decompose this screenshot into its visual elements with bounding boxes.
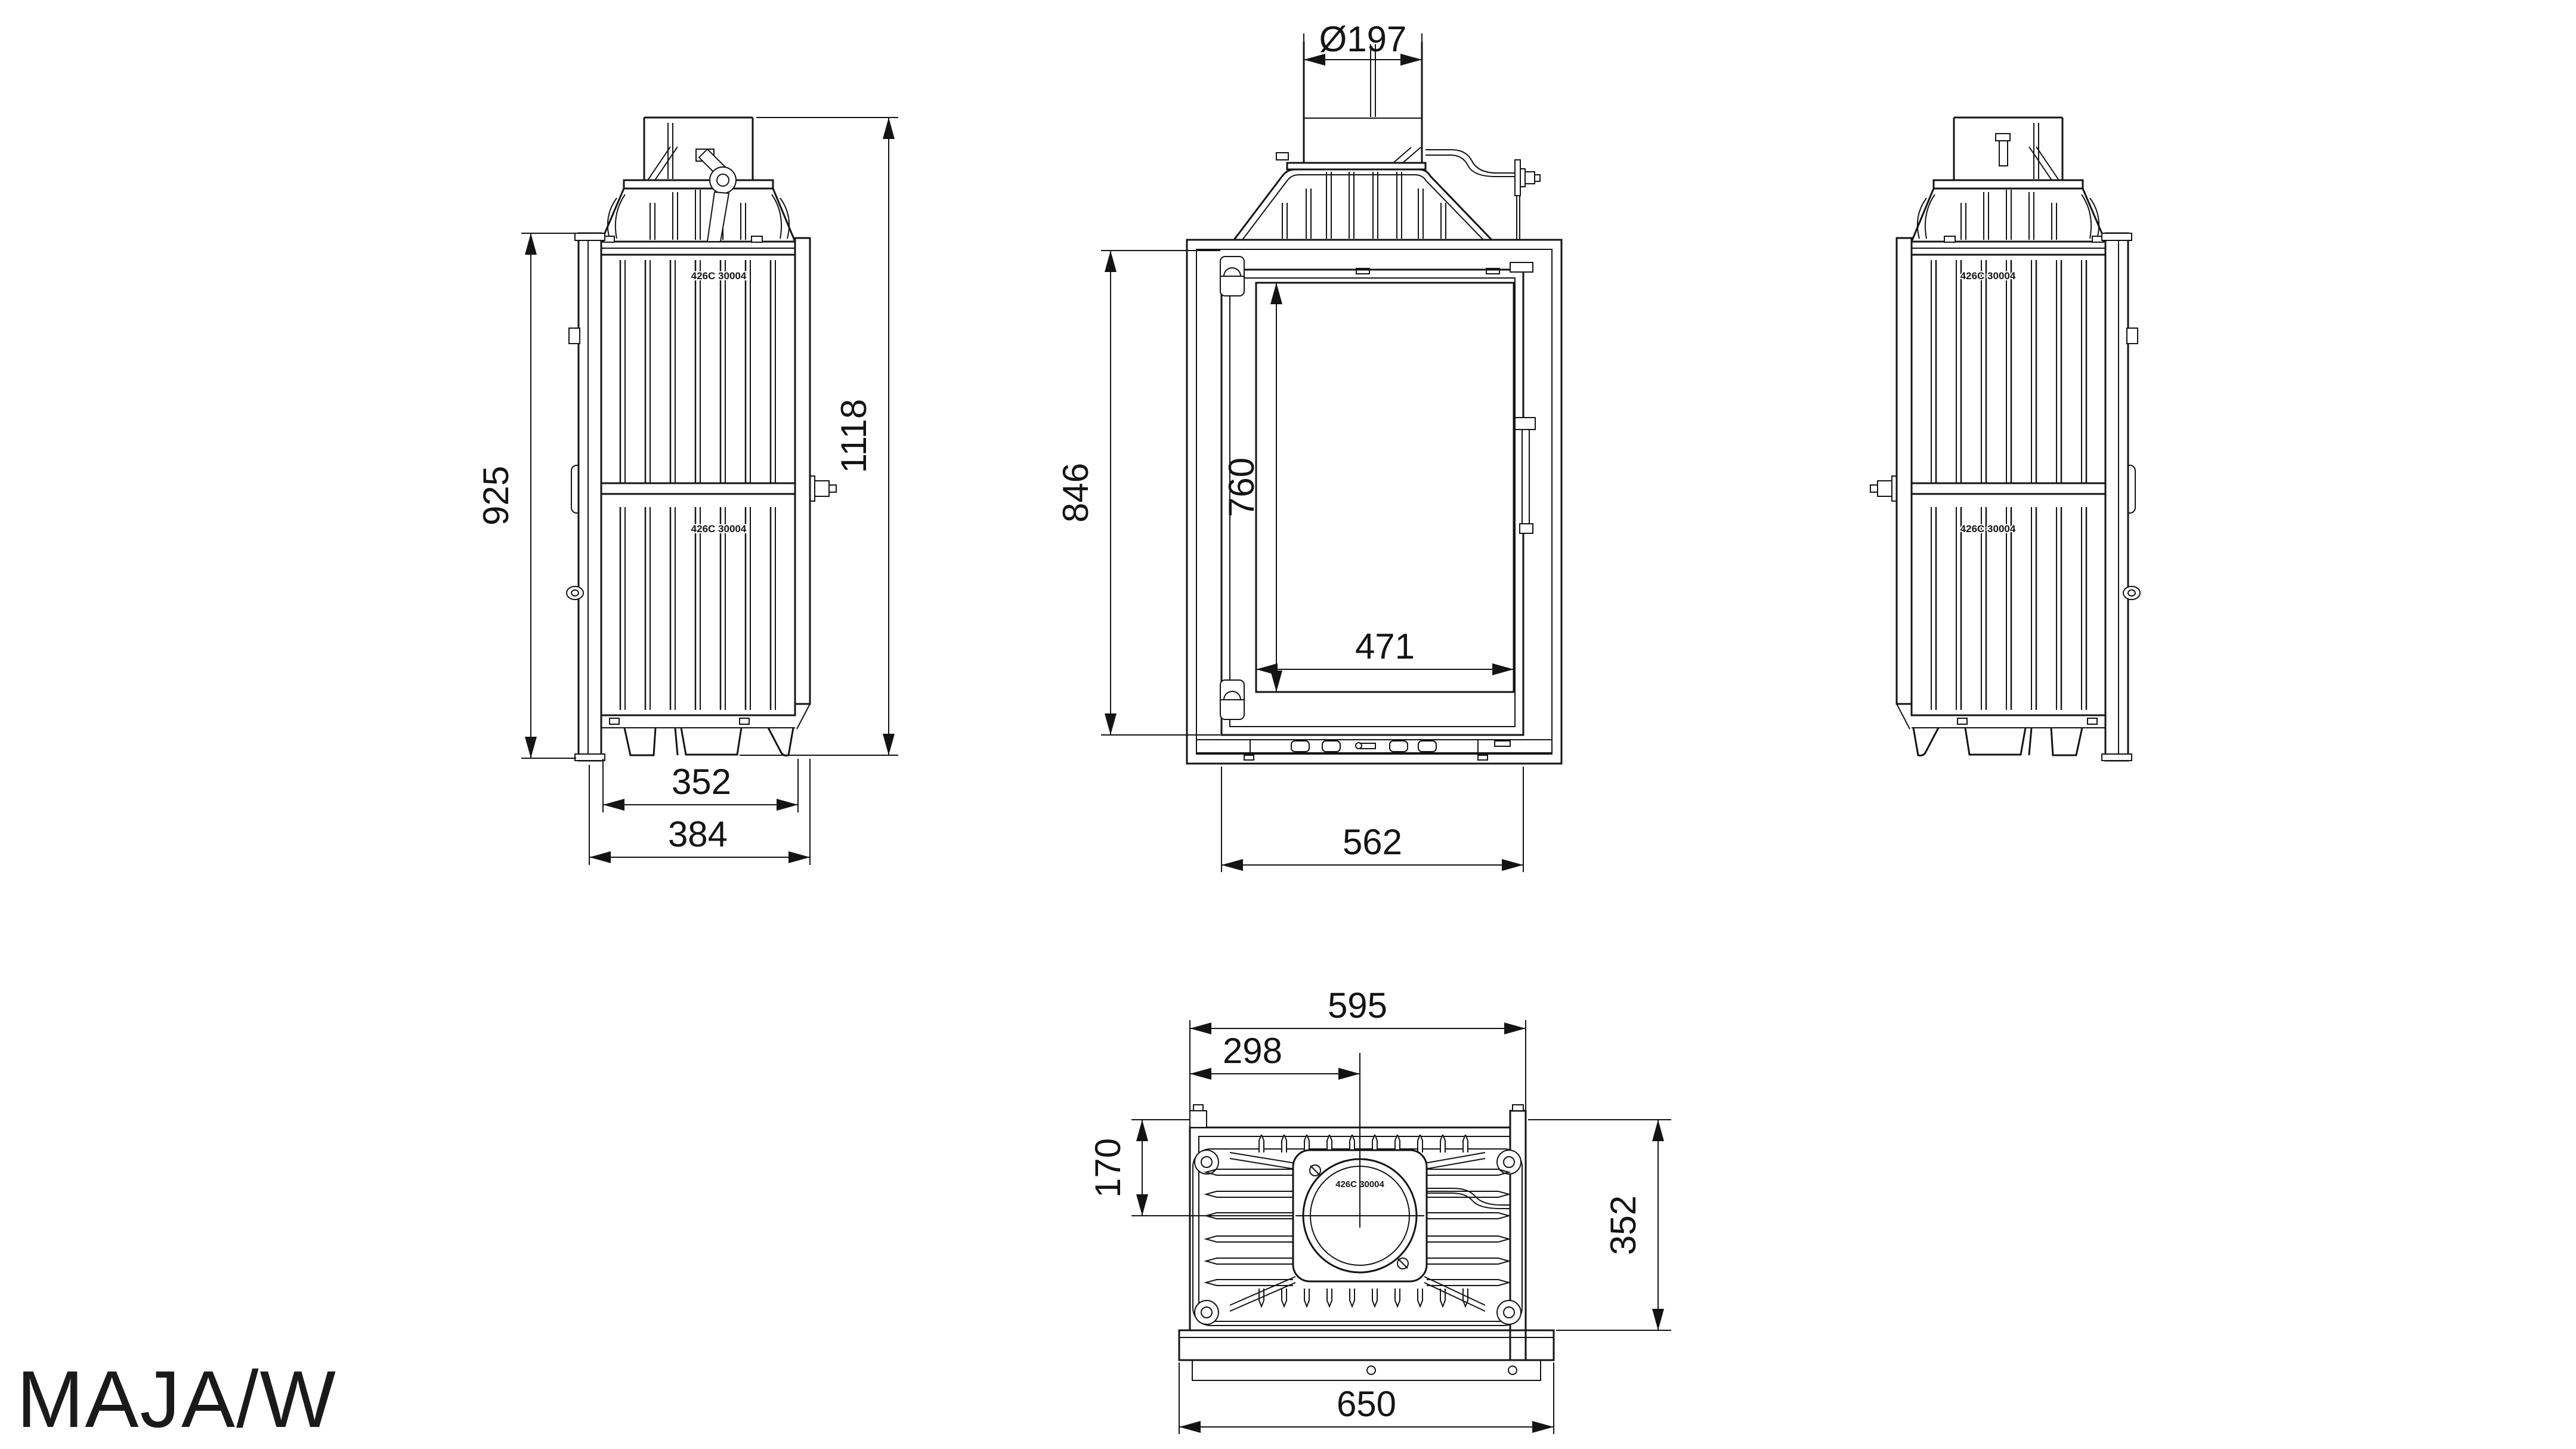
cast-mark-upper-left-view: 426C 30004 <box>691 270 747 282</box>
door-handle <box>1515 418 1535 533</box>
dim-label-body-height: 925 <box>476 466 516 526</box>
dim-label-flue-diameter: Ø197 <box>1319 19 1407 59</box>
dim-label-mounting-width: 595 <box>1328 985 1387 1025</box>
drawing-page: 426C 30004 426C 30004 925 1118 352 384 <box>0 0 2576 1449</box>
dim-opening-height: 846 <box>1056 251 1220 735</box>
air-control-lever <box>1361 743 1375 749</box>
dim-top-body-depth: 352 <box>1528 1120 1671 1330</box>
dim-flue-diameter: Ø197 <box>1304 19 1422 66</box>
dim-label-flue-offset-y: 170 <box>1088 1138 1128 1198</box>
top-shoulder-front <box>1234 169 1492 240</box>
cast-mark-upper-right-view: 426C 30004 <box>1960 270 2016 282</box>
fins-left <box>1206 1169 1293 1286</box>
front-view: Ø197 846 760 471 562 <box>1056 19 1561 872</box>
dim-label-glass-height: 760 <box>1221 458 1261 517</box>
side-body-mirrored <box>1870 118 2140 761</box>
cast-mark-lower-right-view: 426C 30004 <box>1960 523 2016 535</box>
top-view: 426C 30004 595 298 170 <box>1088 985 1671 1434</box>
dim-label-glass-width: 471 <box>1355 626 1415 666</box>
fins-right <box>1427 1169 1509 1286</box>
dim-base-width: 650 <box>1179 1363 1554 1434</box>
cast-mark-lower-left-view: 426C 30004 <box>691 523 747 535</box>
dim-label-top-body-depth: 352 <box>1603 1195 1643 1255</box>
damper-rod-front <box>1425 150 1540 240</box>
side-view-left: 426C 30004 426C 30004 925 1118 352 384 <box>476 118 898 865</box>
hinge-upper <box>1220 257 1244 296</box>
dim-label-flue-offset-x: 298 <box>1223 1031 1282 1071</box>
vent-strip <box>1196 740 1552 760</box>
side-body-drawing <box>567 118 836 761</box>
dim-label-base-width: 650 <box>1337 1384 1396 1424</box>
damper-lever <box>696 149 736 242</box>
fin-spikes-bottom <box>1250 1289 1472 1308</box>
dim-opening-width: 562 <box>1221 767 1523 872</box>
dim-body-depth: 352 <box>603 759 798 812</box>
hinge-lower <box>1220 680 1244 719</box>
dim-body-height: 925 <box>476 233 576 758</box>
dim-label-body-depth: 352 <box>672 762 731 802</box>
dim-label-opening-height: 846 <box>1056 463 1096 523</box>
dim-glass-width: 471 <box>1256 626 1514 675</box>
dim-label-total-depth: 384 <box>668 814 728 854</box>
model-title: MAJA/W <box>17 1354 337 1444</box>
dim-glass-height: 760 <box>1221 283 1282 692</box>
damper-pin <box>1996 134 2010 141</box>
side-view-right: 426C 30004 426C 30004 <box>1870 118 2140 761</box>
base-flange <box>1179 1330 1554 1380</box>
rating-plate <box>1510 262 1533 272</box>
dim-label-total-height: 1118 <box>834 399 874 474</box>
dim-label-opening-width: 562 <box>1343 822 1402 862</box>
mount-tab-left <box>1190 1111 1207 1127</box>
technical-drawing: 426C 30004 426C 30004 925 1118 352 384 <box>0 0 2576 1449</box>
